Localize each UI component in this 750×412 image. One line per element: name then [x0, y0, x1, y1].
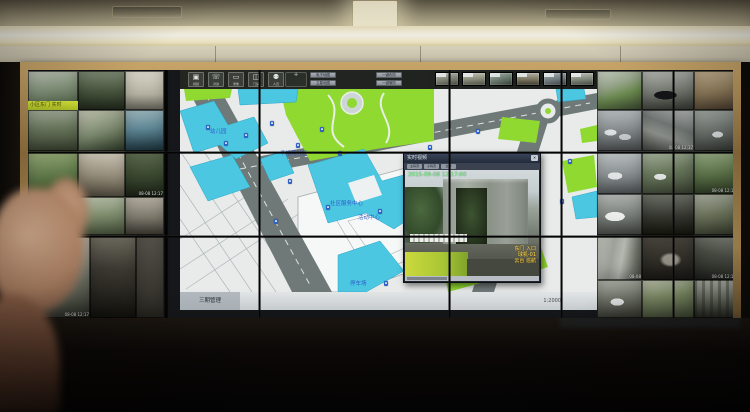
camera-feed [642, 151, 694, 194]
camera-marker[interactable] [428, 145, 432, 150]
map-tool-button[interactable]: ◫门禁 [248, 72, 264, 87]
camera-feed [642, 280, 694, 318]
camera-feed [597, 151, 642, 194]
monitor-bezel [258, 70, 261, 318]
map-toolbar: ▣视频☏对讲▭录像◫门禁⚉人员 ✛ 电子地图卫星地图 一键布防一键撤防 [180, 70, 597, 89]
popup-title: 实时视频 [404, 153, 540, 163]
camera-feed [125, 110, 164, 151]
camera-timestamp: 08-08 12:17 [712, 188, 733, 193]
map-tool-label: 人员 [269, 82, 283, 86]
map-mode-button[interactable]: 卫星地图 [310, 80, 336, 86]
camera-marker[interactable] [568, 159, 572, 164]
video-lawn [405, 252, 468, 277]
map-tool-button[interactable]: ▭录像 [228, 72, 244, 87]
ceiling [0, 0, 750, 66]
camera-feed [78, 110, 125, 151]
camera-marker[interactable] [274, 219, 278, 224]
thumbnail-caption [517, 73, 527, 77]
arming-chip-button[interactable]: 一键撤防 [376, 80, 402, 86]
popup-sub-toolbar: 主码流 子码流 全屏 [404, 163, 540, 170]
map-tool-button[interactable]: ⚉人员 [268, 72, 284, 87]
monitor-bezel [560, 70, 563, 318]
camera-marker[interactable] [384, 281, 388, 286]
map-label: 活动中心 [358, 215, 380, 221]
camera-feed: 08-08 12:17 [642, 110, 694, 151]
camera-feed [694, 110, 733, 151]
camera-marker[interactable] [288, 179, 292, 184]
camera-feed [642, 71, 694, 110]
popup-scrollbar[interactable] [405, 276, 539, 281]
ptz-overlay-text: 东门 入口 球机-01 云台 巡航 [514, 246, 536, 264]
camera-feed: 08-08 12:17 [694, 235, 733, 280]
camera-marker[interactable] [244, 133, 248, 138]
popup-video-feed: 2015-09-08 12:17:00 东门 入口 球机-01 云台 巡航 [405, 170, 539, 277]
ceiling-vent [112, 6, 182, 18]
camera-feed [642, 194, 694, 235]
map-mode-button[interactable]: 电子地图 [310, 72, 336, 78]
live-video-popup: 实时视频 ✕ 主码流 子码流 全屏 2015-09-08 12:17:00 东门… [403, 152, 541, 283]
status-area-name[interactable]: 三期管理 [180, 292, 240, 310]
camera-timestamp: 08-08 12:17 [712, 274, 733, 279]
camera-marker[interactable] [224, 141, 228, 146]
video-timestamp: 2015-09-08 12:17:00 [408, 172, 466, 178]
camera-feed [642, 235, 694, 280]
map-tool-label: 视频 [189, 82, 203, 86]
camera-marker[interactable] [270, 121, 274, 126]
ceiling-light-panel [352, 0, 398, 28]
map-label: 社区服务中心 [330, 201, 363, 207]
control-room-photo: 小区东门 实时08-08 12:1708-08 12:17 08-08 12:1… [0, 0, 750, 412]
camera-feed [694, 280, 733, 318]
camera-feed: 08-08 12:17 [694, 151, 733, 194]
map-scale: 1:2000 [543, 292, 561, 310]
camera-feed [125, 71, 164, 110]
cove-light [0, 26, 750, 46]
camera-caption-banner: 小区东门 实时 [28, 101, 78, 110]
monitor-bezel [448, 70, 451, 318]
camera-thumbnail[interactable] [543, 72, 567, 86]
overlay-line: 云台 巡航 [514, 258, 536, 264]
monitor-bezel [672, 70, 675, 318]
camera-timestamp: 08-08 [629, 274, 641, 279]
map-status-bar: 三期管理 1:2000 [180, 292, 597, 310]
map-label: 停车场 [350, 281, 367, 287]
camera-marker[interactable] [320, 127, 324, 132]
camera-feed: 08-08 12:17 [125, 151, 164, 197]
camera-feed [125, 197, 164, 235]
close-icon[interactable]: ✕ [531, 155, 538, 161]
thumbnail-caption [544, 73, 554, 77]
camera-thumbnail[interactable] [570, 72, 594, 86]
thumbnail-caption [490, 73, 500, 77]
thumbnail-caption [571, 73, 581, 77]
operator-hand-silhouette [0, 182, 102, 412]
camera-feed [597, 71, 642, 110]
map-tool-label: 对讲 [209, 82, 223, 86]
stream-tag[interactable]: 子码流 [424, 164, 439, 169]
pan-navigation-pad[interactable]: ✛ [285, 72, 307, 87]
camera-marker[interactable] [476, 129, 480, 134]
camera-thumbnail[interactable] [489, 72, 513, 86]
camera-feed [694, 71, 733, 110]
camera-feed [597, 194, 642, 235]
camera-thumbnail[interactable] [462, 72, 486, 86]
camera-marker[interactable] [296, 143, 300, 148]
camera-feed [694, 194, 733, 235]
camera-timestamp: 08-08 12:17 [139, 191, 163, 196]
camera-feed [28, 110, 78, 151]
room-below-wall [0, 318, 750, 412]
camera-thumbnail[interactable] [435, 72, 459, 86]
monitor-bezel [28, 235, 733, 238]
ceiling-vent [545, 9, 611, 20]
map-label: 幼儿园 [210, 129, 227, 135]
video-wall: 小区东门 实时08-08 12:1708-08 12:17 08-08 12:1… [28, 70, 733, 318]
camera-marker[interactable] [378, 209, 382, 214]
stream-tag[interactable]: 主码流 [407, 164, 422, 169]
thumbnail-caption [436, 73, 446, 77]
monitor-bezel [28, 151, 733, 154]
hand-arm [0, 294, 60, 412]
camera-feed [136, 235, 164, 318]
camera-feed [597, 110, 642, 151]
map-tool-label: 录像 [229, 82, 243, 86]
thumbnail-caption [463, 73, 473, 77]
camera-feed [78, 71, 125, 110]
map-tool-button[interactable]: ☏对讲 [208, 72, 224, 87]
monitor-bezel [163, 70, 169, 318]
map-tool-button[interactable]: ▣视频 [188, 72, 204, 87]
camera-feed: 小区东门 实时 [28, 71, 78, 110]
camera-feed [597, 280, 642, 318]
camera-thumbnail[interactable] [516, 72, 540, 86]
arming-chip-button[interactable]: 一键布防 [376, 72, 402, 78]
camera-feed: 08-08 [597, 235, 642, 280]
